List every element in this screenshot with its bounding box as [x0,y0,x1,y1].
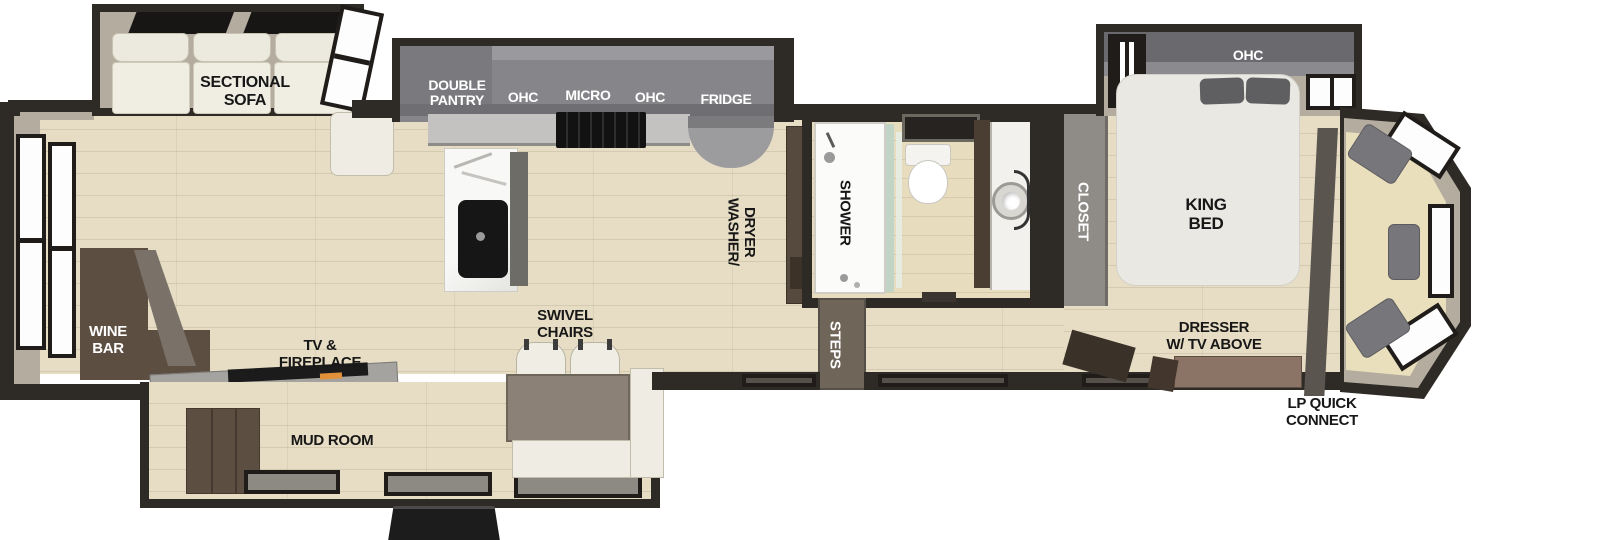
toilet-ohc-cabinet [902,114,980,142]
dresser [1174,356,1302,388]
ohc-left-label: OHC [504,90,542,105]
micro-label: MICRO [560,88,616,103]
double-pantry-label: DOUBLE PANTRY [415,78,499,109]
closet-label: CLOSET [1074,152,1102,272]
entry-step [388,506,500,540]
lp-quick-connect-label: LP QUICK CONNECT [1262,396,1382,429]
wine-bar-label: WINE BAR [58,324,158,357]
fridge-label: FRIDGE [694,92,758,107]
dining-table [506,374,630,442]
sectional-sofa-chaise [330,112,394,176]
bed-pillow-icon [1200,77,1245,105]
bed-pillow-icon [1246,77,1291,105]
nose-window-icon [1428,204,1454,298]
bedroom-ohc-label: OHC [1218,48,1278,63]
vanity-faucet-icon [1014,170,1030,230]
toilet-icon [908,160,948,204]
rear-window-icon [16,134,46,350]
steps-label: STEPS [826,308,858,382]
sofa-skylight-icon [243,12,349,34]
dresser-end [1147,356,1178,392]
bathroom-divider-wall [974,120,990,288]
shower-label: SHOWER [836,168,864,258]
bottom-left-wall [0,384,158,400]
shower-head-icon [824,152,835,163]
king-bed-label: KING BED [1156,196,1256,233]
shower-glass-icon [896,132,902,288]
bathroom-threshold [922,292,956,302]
mud-room-window-icon [384,472,492,496]
floorplan: SECTIONAL SOFA WINE BAR TV & FIREPLACE M… [0,0,1600,540]
tv-fireplace-label: TV & FIREPLACE [250,338,390,371]
fireplace-ember-icon [320,372,342,379]
mud-room-window-icon [244,470,340,494]
sofa-skylight-icon [128,12,234,34]
dresser-label: DRESSER W/ TV ABOVE [1134,320,1294,353]
stove-icon [556,112,646,148]
king-bed [1116,74,1300,286]
sectional-sofa-label: SECTIONAL SOFA [185,74,305,109]
swivel-chairs-label: SWIVEL CHAIRS [505,308,625,341]
kitchen-sink-icon [458,200,508,278]
kitchen-cabinet-top [492,46,782,60]
bottom-window-icon [878,374,1008,387]
island-side [510,152,528,286]
bottom-window-icon [742,374,816,387]
ohc-right-label: OHC [630,90,670,105]
hallway-floor [864,304,1064,374]
shower-glass-icon [886,124,894,292]
rear-corner-wall-inner [20,112,94,120]
sectional-sofa-back [112,33,352,62]
washer-dryer-label: WASHER/ DRYER [724,170,770,294]
table-platform [512,440,636,478]
nose-cushion-icon [1388,224,1420,280]
mud-room-label: MUD ROOM [272,433,392,450]
